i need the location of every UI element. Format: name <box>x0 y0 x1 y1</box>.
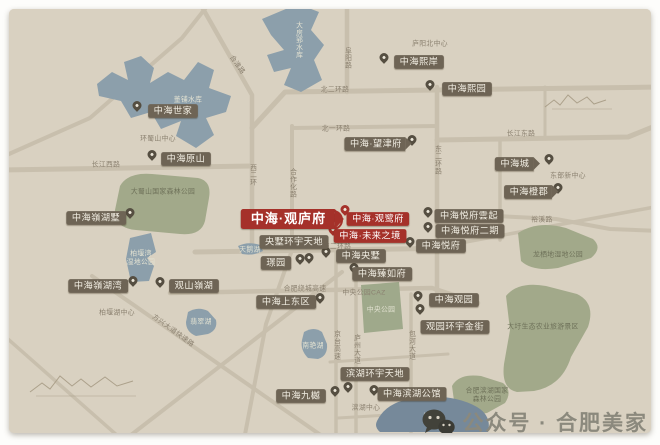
map-inner: 中海世家中海原山中海熙岸中海熙园中海·望津府中海城中海橙郡中海悦府雲起中海悦府二… <box>9 9 651 433</box>
road-label: 京台高速 <box>332 330 340 360</box>
location-pin-icon[interactable] <box>329 384 342 397</box>
project-label[interactable]: 中海上东区 <box>256 295 315 309</box>
project-label[interactable]: 中海观园 <box>429 293 479 307</box>
road-label: 东二环路 <box>433 145 441 175</box>
road-label: 包河大道 <box>407 330 415 360</box>
area-label: 东部新中心 <box>550 172 586 180</box>
project-label[interactable]: 观园环宇金街 <box>421 320 490 334</box>
location-pin-icon[interactable] <box>127 274 140 287</box>
location-pin-icon[interactable] <box>412 289 425 302</box>
area-label: 翡翠湖 <box>190 318 211 326</box>
road-label: 北一环路 <box>322 125 351 133</box>
road-label: 方兴大道快速路 <box>150 313 195 349</box>
road-label: 阜阳路 <box>343 47 351 69</box>
location-pin-icon[interactable] <box>378 51 391 64</box>
location-pin-icon[interactable] <box>131 99 144 112</box>
road-label: 北二环路 <box>321 86 350 94</box>
location-pin-icon[interactable] <box>422 205 435 218</box>
area-label: 庐阳北中心 <box>412 40 448 48</box>
project-label[interactable]: 中海悦府 <box>416 239 466 253</box>
project-label[interactable]: 中海嶺湖墅 <box>66 211 125 225</box>
area-label: 南艳湖 <box>302 342 323 350</box>
project-label[interactable]: 中海央墅 <box>336 249 386 263</box>
road-label: 裕溪路 <box>531 216 552 224</box>
area-label: 中央公园CAZ <box>342 289 385 297</box>
project-label[interactable]: 璟园 <box>261 256 291 270</box>
project-label[interactable]: 中海九樾 <box>276 389 326 403</box>
road-label: 合作化路 <box>288 168 296 198</box>
location-pin-icon[interactable] <box>146 148 159 161</box>
location-pin-icon[interactable] <box>414 302 427 315</box>
area-label: 柏堰湖中心 <box>99 309 135 317</box>
location-pin-icon[interactable] <box>543 152 556 165</box>
project-label[interactable]: 中海熙园 <box>442 82 492 96</box>
map-canvas[interactable]: 中海世家中海原山中海熙岸中海熙园中海·望津府中海城中海橙郡中海悦府雲起中海悦府二… <box>9 9 651 433</box>
project-label[interactable]: 中海橙郡 <box>504 185 552 199</box>
project-label[interactable]: 中海滨湖公馆 <box>378 387 447 401</box>
project-label[interactable]: 中海原山 <box>161 152 211 166</box>
area-label: 天鹅湖 <box>239 246 260 254</box>
road-label: 合淮路 <box>228 54 247 76</box>
area-label: 大蜀山国家森林公园 <box>131 188 195 196</box>
area-label: 大房郢水库 <box>294 21 302 58</box>
area-label: 柏堰湾 湿地公园 <box>127 250 156 266</box>
project-label[interactable]: 中海悦府二期 <box>436 224 505 238</box>
road-label: 庐州大道 <box>352 334 360 364</box>
road-label: 长江东路 <box>507 130 536 138</box>
road-label: 长江西路 <box>92 161 121 169</box>
project-label[interactable]: 中海悦府雲起 <box>435 209 504 223</box>
area-label: 环蜀山中心 <box>140 135 176 143</box>
area-label: 中央公园 <box>367 306 396 314</box>
project-label[interactable]: 中海·观庐府 <box>241 209 335 229</box>
project-label[interactable]: 中海·望津府 <box>344 137 405 151</box>
location-pin-icon[interactable] <box>154 275 167 288</box>
project-label[interactable]: 中海熙岸 <box>394 55 444 69</box>
location-pin-icon[interactable] <box>424 78 437 91</box>
wechat-icon <box>421 408 455 433</box>
project-label[interactable]: 观山嶺湖 <box>169 279 219 293</box>
labels-layer: 中海世家中海原山中海熙岸中海熙园中海·望津府中海城中海橙郡中海悦府雲起中海悦府二… <box>9 9 651 433</box>
project-label[interactable]: 中海臻如府 <box>352 267 411 281</box>
project-label[interactable]: 中海·观鹭府 <box>347 212 410 226</box>
watermark: 公众号 · 合肥美家 <box>421 407 648 433</box>
area-label: 合肥滨湖国家 森林公园 <box>466 387 509 403</box>
area-label: 龙栖地湿地公园 <box>533 251 583 259</box>
area-label: 大圩生态农业旅游景区 <box>507 323 578 331</box>
location-pin-icon[interactable] <box>342 380 355 393</box>
watermark-text: 公众号 · 合肥美家 <box>462 407 648 433</box>
road-label: 西二环 <box>248 164 256 186</box>
area-label: 滨湖中心 <box>352 404 381 412</box>
area-label: 董铺水库 <box>174 96 203 104</box>
project-label[interactable]: 中海世家 <box>148 104 198 118</box>
project-label[interactable]: 中海城 <box>495 157 533 171</box>
project-label[interactable]: 央墅环宇天地 <box>260 235 329 249</box>
project-label[interactable]: 中海嶺湖湾 <box>68 279 127 293</box>
map-screenshot: 中海世家中海原山中海熙岸中海熙园中海·望津府中海城中海橙郡中海悦府雲起中海悦府二… <box>0 0 660 445</box>
project-label[interactable]: 中海·未来之境 <box>334 229 407 243</box>
project-label[interactable]: 滨湖环宇天地 <box>341 367 410 381</box>
location-pin-icon[interactable] <box>422 220 435 233</box>
